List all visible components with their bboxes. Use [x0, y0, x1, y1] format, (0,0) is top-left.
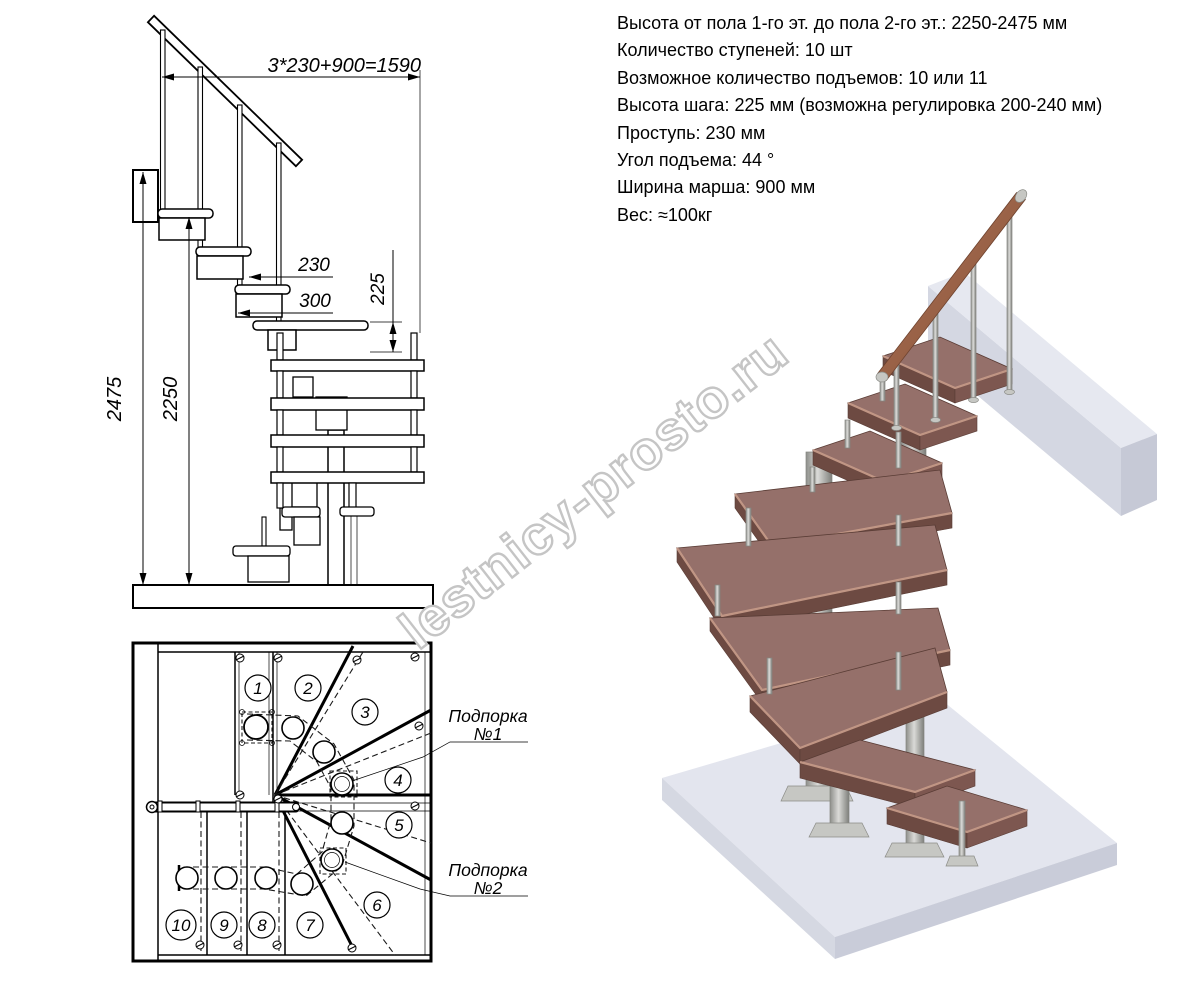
- plan-step-5: 5: [386, 812, 412, 838]
- plan-step-1-label: 1: [253, 679, 262, 698]
- plan-step-3-label: 3: [360, 703, 370, 722]
- plan-view: 1 2 3 4 5 6 7 8 9 10 Подпорка №1 Подпорк…: [133, 643, 528, 961]
- page: Высота от пола 1-го эт. до пола 2-го эт.…: [0, 0, 1191, 993]
- plan-step-10-label: 10: [172, 916, 191, 935]
- dim-total-run: 3*230+900=1590: [268, 55, 422, 77]
- support2-label-line2: №2: [474, 878, 503, 898]
- elevation-floor: [133, 585, 433, 608]
- plan-step-8: 8: [249, 912, 275, 938]
- elevation-view: 3*230+900=1590 230 300 225 2475: [104, 16, 433, 608]
- dim-2250: 2250: [160, 377, 182, 423]
- plan-step-7: 7: [297, 912, 323, 938]
- render-3d: [662, 187, 1157, 959]
- plan-support-labels: Подпорка №1 Подпорка №2: [345, 706, 528, 898]
- dim-module-300: 300: [299, 291, 331, 312]
- support1-label-line2: №1: [474, 724, 503, 744]
- plan-step-4: 4: [385, 767, 411, 793]
- elevation-wall-bracket: [133, 170, 158, 222]
- plan-step-2: 2: [295, 675, 321, 701]
- dim-2475: 2475: [104, 376, 126, 422]
- plan-step-1: 1: [245, 675, 271, 701]
- support1-label-line1: Подпорка: [448, 706, 527, 726]
- plan-step-10: 10: [166, 910, 196, 940]
- floor-slab: [662, 697, 1117, 959]
- drawing-canvas: 3*230+900=1590 230 300 225 2475: [0, 0, 1191, 993]
- handrail-end-cap: [876, 372, 888, 382]
- dim-height-225: 225: [368, 273, 389, 306]
- dim-tread-230: 230: [297, 255, 330, 276]
- plan-step-9: 9: [211, 912, 237, 938]
- plan-step-3: 3: [352, 699, 378, 725]
- plan-step-9-label: 9: [219, 916, 229, 935]
- plan-step-6: 6: [364, 892, 390, 918]
- plan-step-8-label: 8: [257, 916, 267, 935]
- plan-step-4-label: 4: [393, 771, 402, 790]
- plan-step-7-label: 7: [305, 916, 315, 935]
- plan-step-2-label: 2: [302, 679, 313, 698]
- plan-step-5-label: 5: [394, 816, 404, 835]
- support2-label-line1: Подпорка: [448, 860, 527, 880]
- plan-step-6-label: 6: [372, 896, 382, 915]
